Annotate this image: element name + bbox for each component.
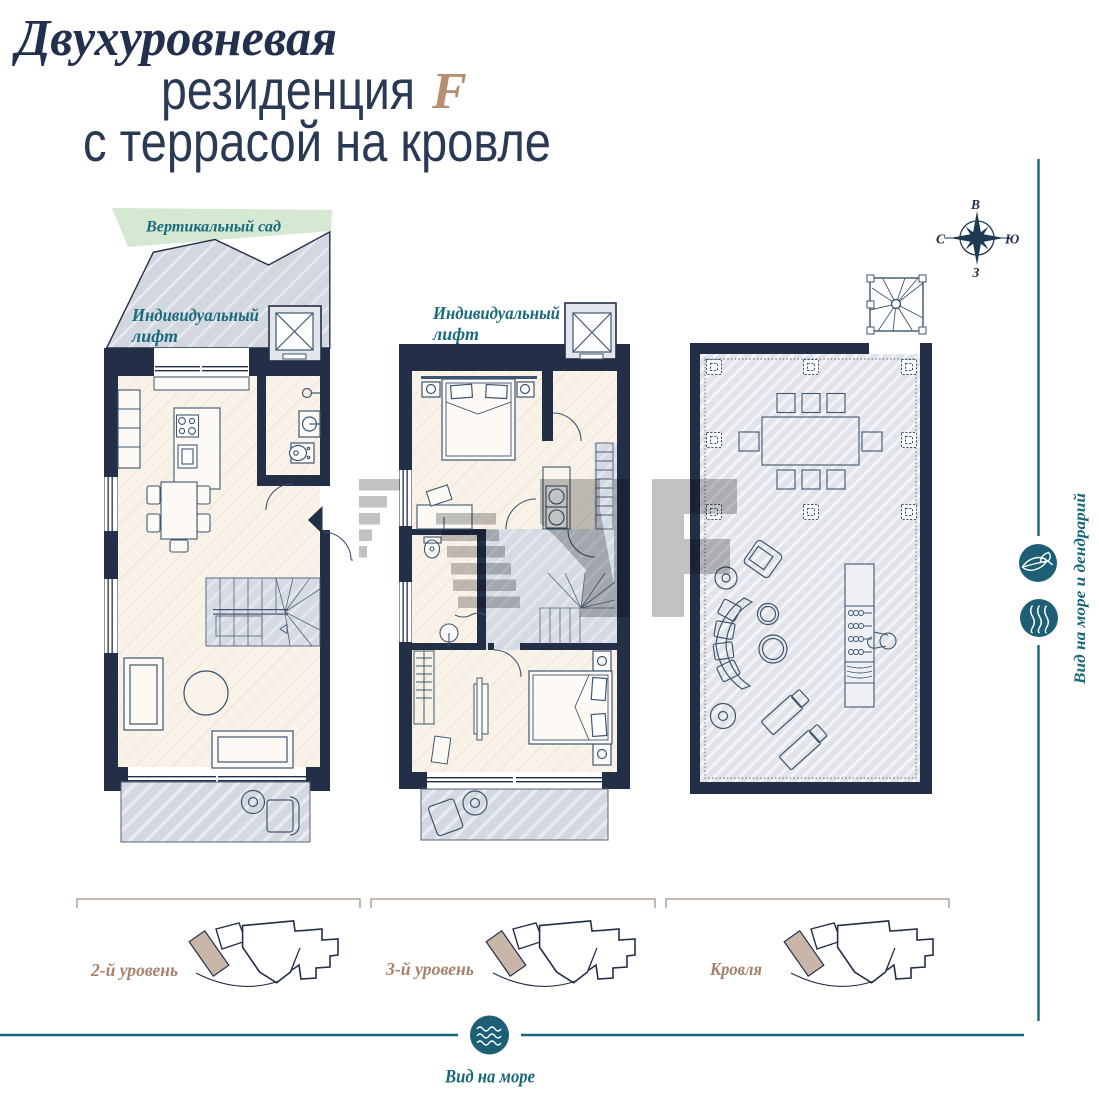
svg-text:2-й уровень: 2-й уровень [90,960,178,980]
svg-text:В: В [970,197,980,212]
svg-text:3-й уровень: 3-й уровень [385,959,474,979]
svg-text:Вертикальный сад: Вертикальный сад [145,219,281,236]
svg-text:лифт: лифт [131,326,178,346]
svg-text:Кровля: Кровля [709,959,762,979]
svg-text:Ю: Ю [1004,232,1019,247]
svg-text:с террасой на кровле: с террасой на кровле [83,110,551,173]
svg-text:Индивидуальный: Индивидуальный [131,305,259,325]
svg-text:Индивидуальный: Индивидуальный [432,303,560,323]
svg-text:лифт: лифт [432,324,479,344]
svg-text:С: С [936,232,946,247]
svg-text:Вид на море: Вид на море [444,1068,535,1088]
svg-text:Вид на море и дендрарий: Вид на море и дендрарий [1072,493,1089,685]
svg-text:З: З [972,265,980,280]
